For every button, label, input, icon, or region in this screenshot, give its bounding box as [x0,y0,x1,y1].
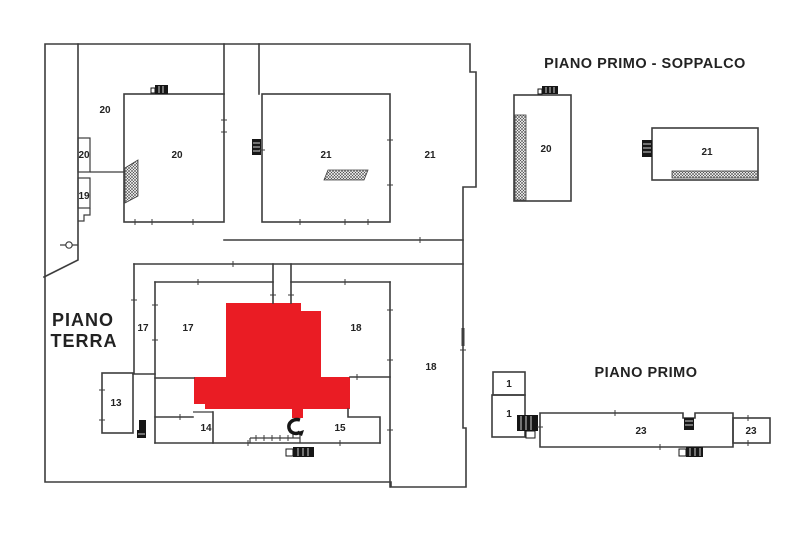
room-label-gt-18-main: 18 [350,323,362,334]
mezzanine-title: PIANO PRIMO - SOPPALCO [544,56,746,72]
room-label-pp-1-lower: 1 [506,409,512,420]
stair-icon-pp-23-top [684,418,694,430]
stair-icon-room21-left [252,139,261,155]
room-label-gt-13: 13 [110,398,122,409]
room-label-pp-1-upper: 1 [506,379,512,390]
stairs-hatch-room21 [324,170,368,180]
stairs-hatch-sp-21 [672,171,758,178]
canvas-background [0,0,800,533]
room-label-gt-20-main: 20 [171,150,183,161]
room-label-sp-20: 20 [540,144,552,155]
room-label-gt-17-main: 17 [182,323,194,334]
room-label-pp-23-right: 23 [745,426,757,437]
floor-plan-drawing: PIANO TERRA PIANO PRIMO - SOPPALCO PIANO… [0,0,800,533]
room-label-gt-15: 15 [334,423,346,434]
stairs-hatch-room20 [125,160,138,203]
ground-floor-title-line1: PIANO [52,310,114,330]
room-label-gt-14: 14 [200,423,212,434]
room-label-gt-21-right: 21 [424,150,436,161]
stair-icon-sp-21-left [642,140,652,157]
floor-plan-page: PIANO TERRA PIANO PRIMO - SOPPALCO PIANO… [0,0,800,533]
room-label-gt-20-corridor: 20 [99,105,111,116]
stairs-hatch-sp-20 [515,115,526,200]
room-label-gt-20-small: 20 [78,150,90,161]
room-label-gt-17-strip: 17 [137,323,149,334]
ground-floor-title-line2: TERRA [51,331,118,351]
room-label-sp-21: 21 [701,147,713,158]
room-label-gt-18-strip: 18 [425,362,437,373]
first-floor-title: PIANO PRIMO [595,365,698,381]
room-label-gt-19: 19 [78,191,90,202]
room-label-gt-21-main: 21 [320,150,332,161]
room-label-pp-23-main: 23 [635,426,647,437]
